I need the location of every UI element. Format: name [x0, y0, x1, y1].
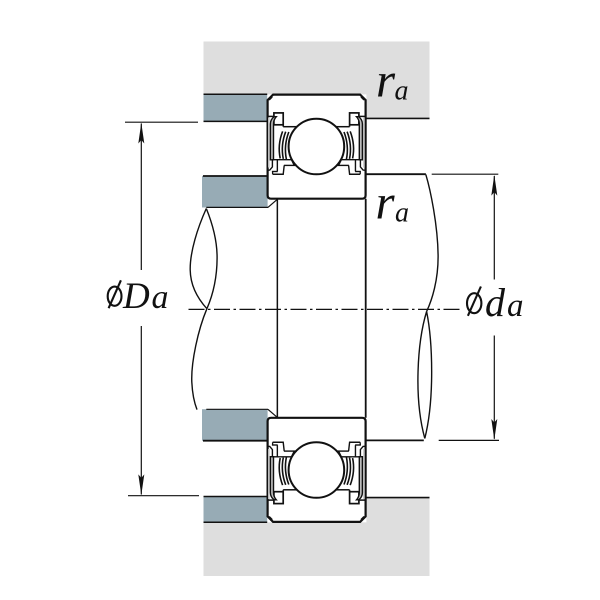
svg-text:a: a: [152, 279, 169, 316]
svg-text:D: D: [122, 276, 150, 317]
svg-text:a: a: [395, 198, 409, 229]
svg-text:r: r: [376, 53, 396, 108]
svg-text:d: d: [485, 280, 506, 325]
svg-text:a: a: [507, 288, 524, 324]
svg-text:a: a: [395, 76, 409, 107]
svg-text:r: r: [376, 175, 396, 230]
